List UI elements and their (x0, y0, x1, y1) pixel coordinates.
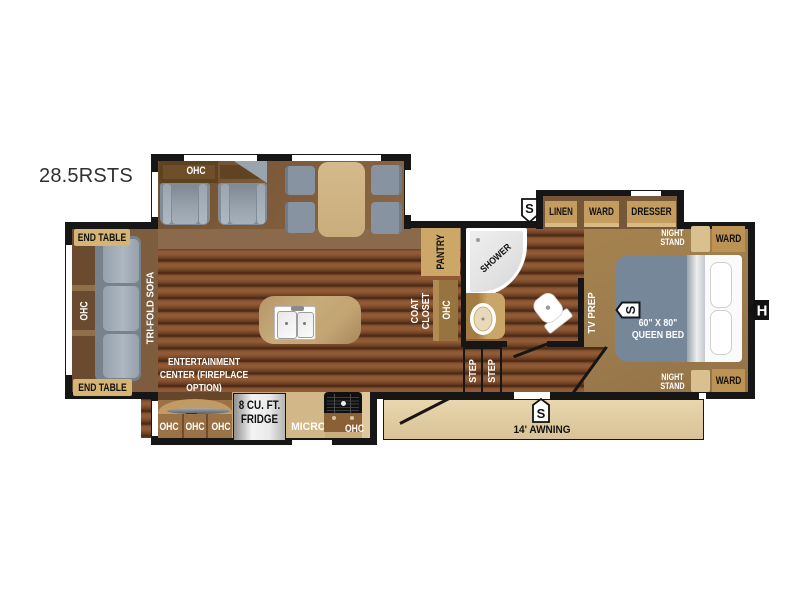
svg-text:S: S (525, 201, 534, 216)
svg-text:S: S (623, 305, 638, 314)
svg-text:S: S (537, 406, 546, 421)
svg-text:H: H (757, 303, 768, 320)
